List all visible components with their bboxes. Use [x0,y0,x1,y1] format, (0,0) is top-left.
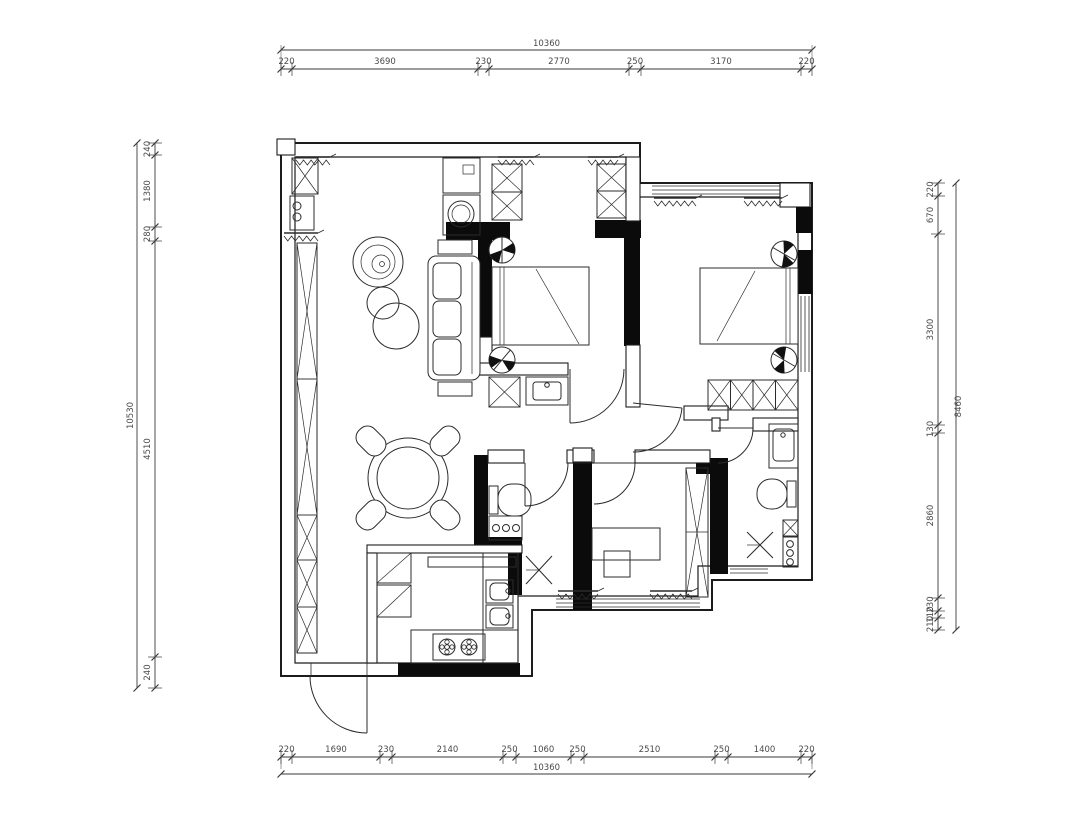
dim-label: 2140 [437,745,459,755]
dim-label: 1380 [143,180,153,202]
dim-label: 230 [475,57,491,67]
chair [604,551,630,577]
dim-label: 4510 [143,438,153,460]
corner-column [277,139,295,155]
shower-shelf [783,537,798,567]
bed [492,267,589,345]
nightstand-lamp-icon [766,342,802,378]
burner-icon [461,639,477,655]
dim-label: 3300 [926,319,936,341]
dim-label: 250 [713,745,729,755]
gas-stove [433,627,485,660]
dim-label: 220 [278,745,294,755]
double-sink [486,580,513,628]
dim-label: 2510 [639,745,661,755]
dim-label: 2860 [926,505,936,527]
master-bedroom [700,236,802,410]
floor-plan-drawing: 22036902302770250317022010360 2201690230… [0,0,1080,826]
plant-icon [367,287,419,349]
plant-icon [353,237,403,287]
laundry-cabinet [290,158,318,230]
curtain-icon [284,230,324,241]
entry-door [310,676,367,733]
nightstand-lamp-icon [489,237,515,263]
nightstand-lamp-icon [766,236,802,272]
master-bedroom-door [633,403,682,452]
side-table [438,382,472,396]
dim-label: 280 [143,226,153,242]
dim-label: 1690 [325,745,347,755]
dim-label: 250 [569,745,585,755]
master-bathroom [747,424,798,567]
dim-label: 670 [926,207,936,223]
dim-label: 3690 [374,57,396,67]
corner-column [780,183,810,207]
range-hood [428,557,516,567]
desk [592,528,660,560]
dim-label: 1060 [533,745,555,755]
bedroom1-door [570,369,624,423]
vanity-sink [489,516,522,540]
dining-table-set [352,422,464,534]
floor-plan-canvas: 22036902302770250317022010360 2201690230… [0,0,1080,826]
dimension-top: 22036902302770250317022010360 [278,39,816,76]
curtain-icon [296,154,336,165]
kitchen [377,553,518,663]
curtain-icon [588,154,624,165]
dim-label: 3170 [710,57,732,67]
dimension-right: 220670330013028602301102108460 [926,180,964,634]
window-right-wall [801,296,809,372]
bed [700,268,798,344]
dim-label: 220 [926,181,936,197]
dim-label: 1400 [754,745,776,755]
master-bath-door [718,428,753,463]
dim-label: 8460 [954,396,964,418]
dim-label: 240 [143,141,153,157]
window-masterbath-bottom [730,569,768,573]
dim-label: 2770 [548,57,570,67]
dimension-bottom: 2201690230214025010602502510250140022010… [278,745,816,778]
dim-label: 240 [143,664,153,680]
dim-label: 10360 [533,763,560,773]
dim-label: 10360 [533,39,560,49]
curtain-icon [498,154,540,165]
dim-label: 230 [378,745,394,755]
washbasin [526,377,568,405]
toilet [757,479,796,509]
dim-label: 220 [798,745,814,755]
burner-icon [439,639,455,655]
shower-drain-icon [747,532,773,558]
tv-wall-cabinet [297,243,317,653]
dim-label: 250 [501,745,517,755]
dim-label: 130 [926,421,936,437]
sofa [428,240,480,396]
dim-label: 250 [627,57,643,67]
shower-drain-icon [526,556,552,584]
study [592,468,708,597]
window-master-top [652,186,780,194]
side-table [438,240,472,254]
counter [411,630,518,663]
dim-label: 10530 [126,402,136,429]
study-door [594,463,635,504]
dim-label: 210 [926,616,936,632]
dimension-left: 2401380280451024010530 [126,140,162,692]
exterior-walls [277,139,812,676]
